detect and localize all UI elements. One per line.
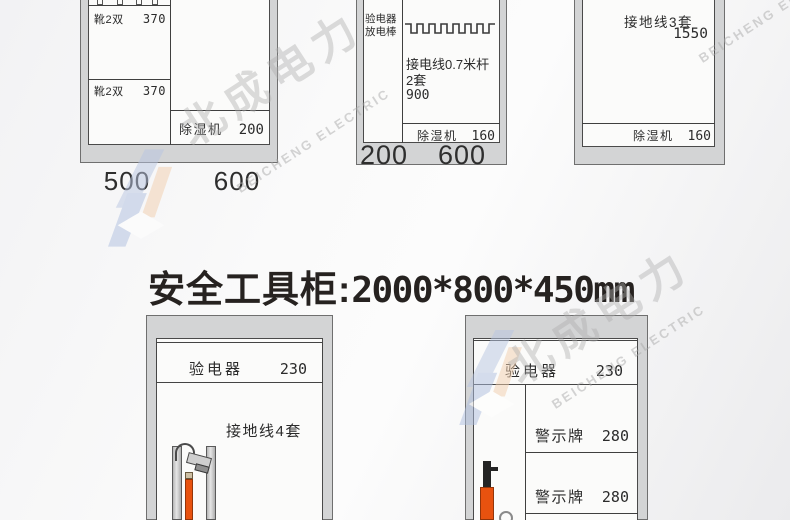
- shelf-row: 靴2双 370: [94, 11, 166, 27]
- shelf-row: 靴2双 370: [94, 83, 166, 99]
- shelf-label: 靴2双: [94, 11, 124, 27]
- divider-line: [525, 452, 638, 453]
- content-line: 2套: [406, 73, 500, 89]
- hanger-hook-icon: [136, 0, 142, 5]
- product-diagram: 靴2双 370 靴2双 370 除湿机 200 500 600 验电器 放电棒 …: [0, 0, 790, 520]
- rod-connector-icon: [185, 472, 193, 479]
- brand-logo-icon: [108, 148, 176, 248]
- title-dimensions: 2000*800*450mm: [351, 270, 633, 311]
- shelf-value: 370: [143, 84, 166, 98]
- side-label: 验电器: [365, 13, 401, 26]
- dehumidifier-label: 除湿机: [633, 127, 674, 144]
- hanger-hook-icon: [97, 0, 103, 5]
- divider-line: [88, 79, 170, 80]
- width-label: 600: [433, 140, 491, 171]
- dehumidifier-label: 除湿机: [179, 119, 223, 138]
- hook-rail-icon: [404, 20, 496, 36]
- content-line: 接电线0.7米杆: [406, 57, 500, 73]
- divider-line: [582, 123, 715, 124]
- content-value: 1550: [662, 26, 708, 42]
- divider-line: [525, 513, 638, 514]
- tester-label: 验电器: [189, 358, 243, 379]
- divider-line: [170, 110, 270, 111]
- ring-icon: [499, 511, 513, 520]
- tester-row: 验电器 230: [189, 358, 307, 379]
- shelf-value: 370: [143, 12, 166, 26]
- divider-line: [402, 123, 500, 124]
- shelf-label: 靴2双: [94, 83, 124, 99]
- warning-sign-value: 280: [602, 427, 629, 445]
- dehumidifier-row: 除湿机 200: [179, 119, 264, 138]
- discharge-rod-icon: [480, 487, 494, 520]
- discharge-rod-cap-icon: [483, 461, 491, 488]
- width-label: 600: [207, 166, 267, 197]
- divider-line: [402, 0, 403, 143]
- tester-value: 230: [280, 360, 307, 378]
- dehumidifier-value: 200: [239, 122, 264, 138]
- grounding-rod-icon: [185, 479, 193, 520]
- hanger-hook-icon: [117, 0, 123, 5]
- warning-sign-row: 警示牌 280: [535, 486, 629, 507]
- tester-label: 验电器: [505, 360, 559, 381]
- side-label: 放电棒: [365, 26, 401, 39]
- dehumidifier-value: 160: [688, 129, 711, 144]
- dehumidifier-row: 除湿机 160: [633, 127, 711, 144]
- warning-sign-label: 警示牌: [535, 425, 585, 446]
- width-label: 500: [97, 166, 157, 197]
- discharge-rod-hook-icon: [490, 467, 498, 471]
- warning-sign-value: 280: [602, 488, 629, 506]
- warning-sign-label: 警示牌: [535, 486, 585, 507]
- divider-line: [170, 0, 171, 145]
- hanger-hook-icon: [152, 0, 158, 5]
- content-text-block: 接电线0.7米杆 2套 900: [406, 57, 500, 104]
- side-column-labels: 验电器 放电棒: [365, 13, 401, 39]
- warning-sign-row: 警示牌 280: [535, 425, 629, 446]
- page-title: 安全工具柜: 2000*800*450mm: [148, 259, 634, 313]
- tester-row: 验电器 230: [505, 360, 623, 381]
- content-line: 900: [406, 88, 500, 104]
- divider-line: [88, 5, 170, 6]
- title-text: 安全工具柜:: [148, 259, 351, 313]
- content-label: 接地线4套: [226, 420, 302, 441]
- width-label: 200: [359, 140, 409, 171]
- tester-value: 230: [596, 362, 623, 380]
